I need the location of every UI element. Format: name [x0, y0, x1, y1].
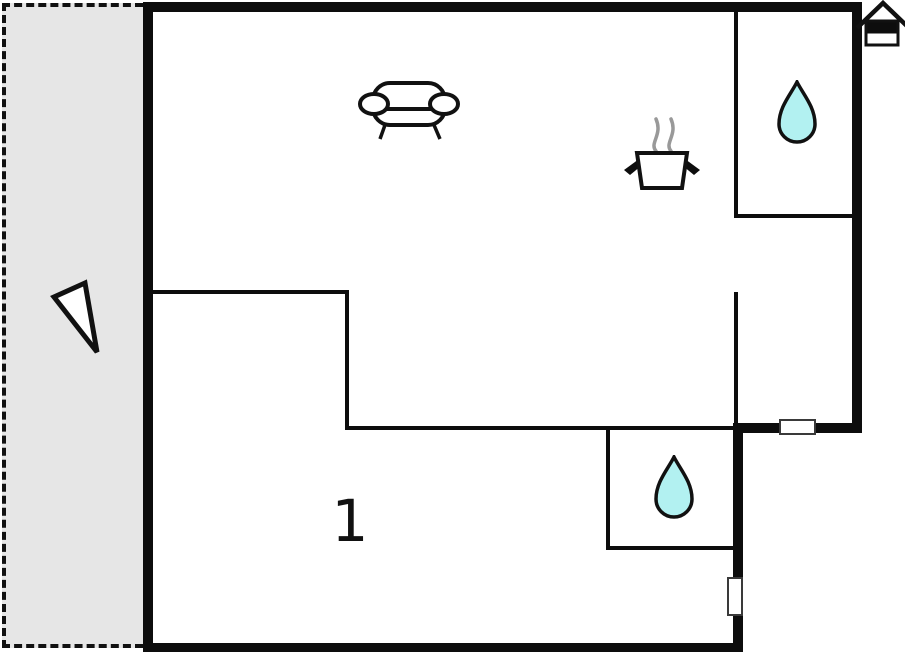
sofa-icon — [352, 75, 467, 145]
wall-bathroom-bottom-bottom — [606, 546, 737, 550]
window-marker — [779, 419, 816, 435]
wall-bathroom-top-bottom — [734, 214, 854, 218]
cooking-pot-icon — [618, 105, 710, 195]
north-arrow-icon — [35, 263, 115, 363]
house-icon — [853, 0, 905, 50]
window-marker — [727, 577, 743, 616]
water-drop-icon — [653, 455, 695, 519]
wall-top — [143, 2, 862, 12]
water-drop-icon — [776, 80, 818, 144]
wall-left — [143, 2, 153, 652]
wall-mid-left-horizontal — [150, 290, 349, 294]
room-label: 1 — [325, 492, 375, 550]
wall-mid-right-horizontal — [345, 426, 737, 430]
wall-bathroom-bottom-left — [606, 428, 610, 550]
steam-icon — [669, 119, 673, 151]
floor-plan: 1 — [0, 0, 905, 652]
wall-right-lower — [733, 423, 743, 652]
wall-corridor-vertical — [734, 292, 738, 427]
steam-icon — [654, 119, 658, 151]
wall-bathroom-top-left — [734, 10, 738, 218]
wall-bottom — [143, 643, 743, 652]
wall-mid-vertical — [345, 290, 349, 430]
